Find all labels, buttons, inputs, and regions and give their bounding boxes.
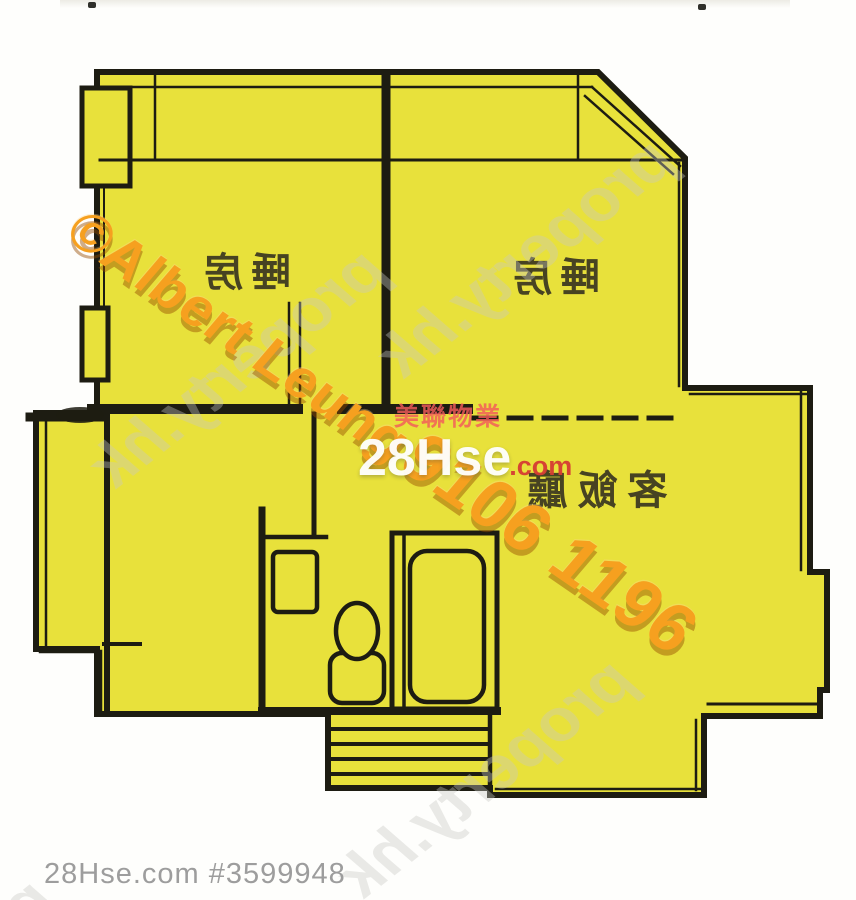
top-crop-dot bbox=[88, 2, 96, 8]
top-crop-artifact bbox=[60, 0, 790, 8]
site-logo-watermark: 28Hse.com bbox=[358, 428, 572, 488]
wash-basin bbox=[273, 552, 317, 612]
site-logo-main-text: 28Hse bbox=[358, 429, 511, 487]
site-logo-suffix-text: .com bbox=[509, 451, 572, 481]
top-crop-dot bbox=[698, 4, 706, 10]
floor-plan-page: 睡房 睡房 客飯廳 property.hk property.hk proper… bbox=[0, 0, 856, 900]
listing-reference: 28Hse.com #3599948 bbox=[44, 858, 346, 891]
toilet-bowl bbox=[336, 603, 378, 659]
